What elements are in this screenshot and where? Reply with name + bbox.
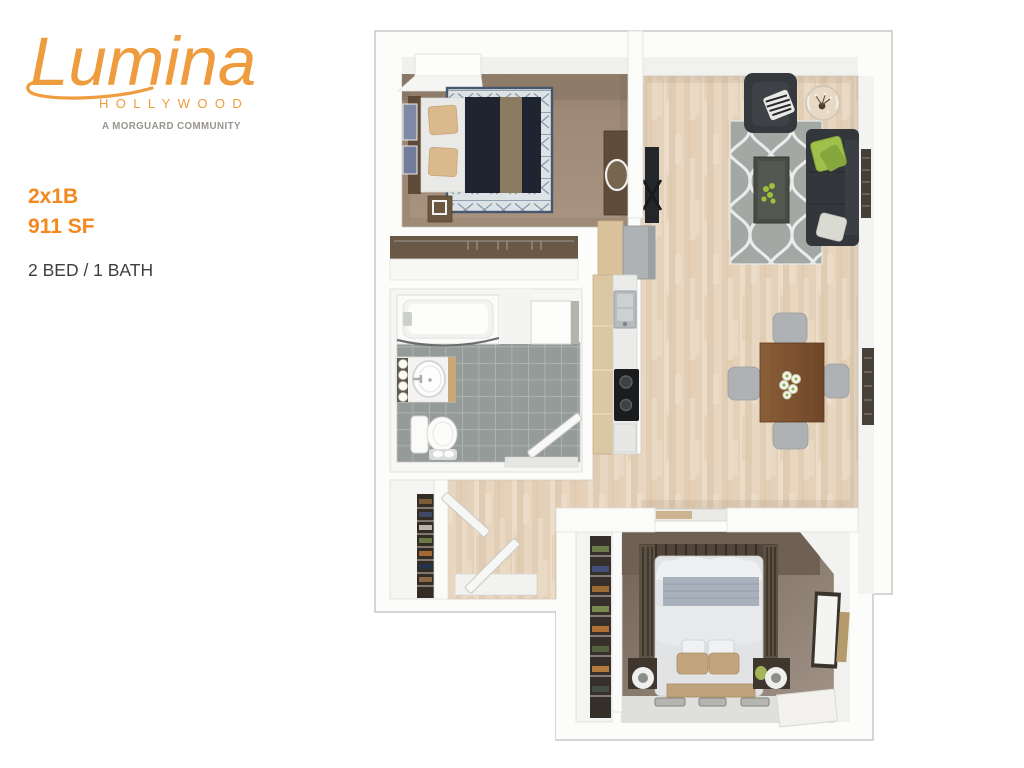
svg-text:Lumina: Lumina <box>30 23 256 100</box>
svg-text:2 BED / 1 BATH: 2 BED / 1 BATH <box>28 260 153 280</box>
svg-text:A MORGUARD COMMUNITY: A MORGUARD COMMUNITY <box>102 121 241 132</box>
svg-text:911 SF: 911 SF <box>28 215 95 238</box>
svg-text:HOLLYWOOD: HOLLYWOOD <box>99 96 249 111</box>
svg-text:2x1B: 2x1B <box>28 185 78 208</box>
